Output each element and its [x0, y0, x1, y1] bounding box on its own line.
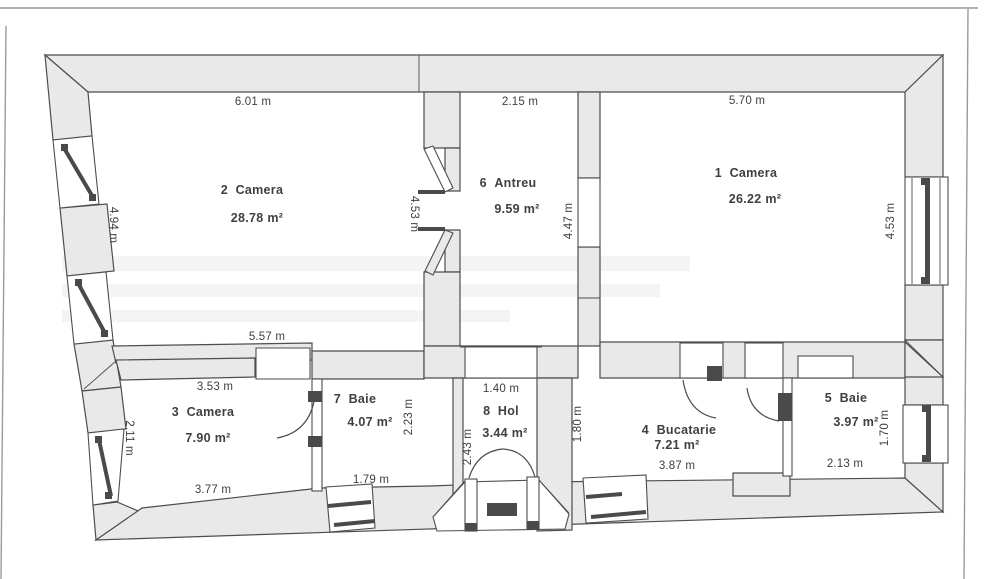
watermark-stripe: [62, 256, 430, 271]
watermark-stripe: [62, 284, 660, 297]
watermark-stripe: [452, 256, 690, 271]
room-label-5: 5 Baie: [825, 391, 867, 405]
room-area-1: 26.22 m²: [729, 192, 781, 206]
wall-step: [733, 473, 790, 496]
opening-antreu-r1: [578, 178, 600, 247]
room-area-7: 4.07 m²: [347, 415, 392, 429]
window-hardware: [105, 492, 112, 499]
room-area-5: 3.97 m²: [833, 415, 878, 429]
dim-baie7-right: 2.23 m: [403, 399, 415, 435]
window-hardware: [101, 330, 108, 337]
wall-band-left-lower: [116, 358, 255, 380]
dim-wall-557: 5.57 m: [249, 331, 285, 343]
room-area-3: 7.90 m²: [185, 431, 230, 445]
exterior-walls: [45, 55, 943, 540]
room-label-1: 1 Camera: [715, 166, 778, 180]
opening-antreu-hol: [465, 346, 537, 378]
dim-left-camera2: 4.94 m: [107, 207, 119, 243]
wall-niche-baie5: [798, 356, 853, 378]
opening-r2-r3: [256, 348, 310, 379]
dim-top-camera2: 6.01 m: [235, 96, 271, 108]
wall-band-r3-top: [312, 351, 424, 379]
dim-antreu-right: 4.47 m: [563, 203, 575, 239]
opening-baie5: [745, 343, 783, 378]
window-hardware: [922, 455, 931, 462]
dim-camera3-bottom: 3.77 m: [195, 484, 231, 496]
windows-and-doors: [53, 136, 948, 532]
dim-wall-353: 3.53 m: [197, 381, 233, 393]
room-label-6: 6 Antreu: [480, 176, 537, 190]
wall-top: [45, 55, 943, 92]
window-hardware: [921, 277, 930, 284]
window-hardware: [95, 436, 102, 443]
floor-plan-page: 2 Camera 28.78 m² 6 Antreu 9.59 m² 1 Cam…: [0, 0, 1000, 579]
wall-r2-antreu: [424, 272, 460, 346]
door-hardware: [527, 521, 539, 529]
window-right-2: [903, 405, 948, 463]
dim-hol-top: 1.40 m: [483, 383, 519, 395]
room-label-3: 3 Camera: [172, 405, 235, 419]
door-hinge-block: [308, 436, 322, 447]
dim-right-camera1: 4.53 m: [885, 203, 897, 239]
door-leaf-baie5: [778, 393, 792, 421]
room-label-4: 4 Bucatarie: [642, 423, 716, 437]
wall-left-pier: [82, 387, 126, 433]
wall-antreu-r1: [578, 247, 600, 346]
page-border-left: [1, 26, 6, 579]
dim-baie7-bottom: 1.79 m: [353, 474, 389, 486]
dim-bucatarie-bottom: 3.87 m: [659, 460, 695, 472]
floor-plan-svg: 2 Camera 28.78 m² 6 Antreu 9.59 m² 1 Cam…: [0, 0, 1000, 579]
room-area-4: 7.21 m²: [654, 438, 699, 452]
room-label-8: 8 Hol: [483, 404, 519, 418]
room-area-6: 9.59 m²: [494, 202, 539, 216]
entrance-threshold: [487, 503, 517, 516]
dim-hol-left: 2.43 m: [462, 429, 474, 465]
room-label-7: 7 Baie: [334, 392, 376, 406]
page-border-right: [964, 9, 968, 579]
dim-top-antreu: 2.15 m: [502, 96, 538, 108]
dim-left-camera3: 2.11 m: [123, 420, 135, 456]
dim-top-camera1: 5.70 m: [729, 95, 765, 107]
door-swing-arc-entrance-right: [502, 449, 535, 477]
window-glazing-bar: [926, 409, 931, 459]
window-hardware: [75, 279, 82, 286]
dim-baie5-bottom: 2.13 m: [827, 458, 863, 470]
window-hardware: [89, 194, 96, 201]
door-hardware: [465, 523, 477, 531]
wall-right-mid: [905, 285, 943, 340]
door-swing-arc-baie5: [747, 388, 779, 421]
wall-r2-antreu: [424, 92, 460, 148]
door-swing-arc-r7: [277, 396, 315, 438]
room-label-2: 2 Camera: [221, 183, 284, 197]
dim-baie5-right: 1.70 m: [879, 410, 891, 446]
window-hardware: [921, 178, 930, 185]
room-area-8: 3.44 m²: [482, 426, 527, 440]
window-hardware: [922, 405, 931, 412]
door-swing-arc-bucatarie: [683, 380, 716, 418]
dim-bucatarie-left: 1.80 m: [572, 406, 584, 442]
room-area-2: 28.78 m²: [231, 211, 283, 225]
wall-antreu-r1: [578, 92, 600, 178]
dim-antreu-left: 4.53 m: [408, 196, 420, 232]
window-hardware: [61, 144, 68, 151]
door-hinge-block: [707, 366, 722, 381]
window-glazing-bar: [925, 183, 930, 280]
wall-partition-buc-baie: [783, 378, 792, 476]
wall-left-pier: [60, 204, 114, 276]
